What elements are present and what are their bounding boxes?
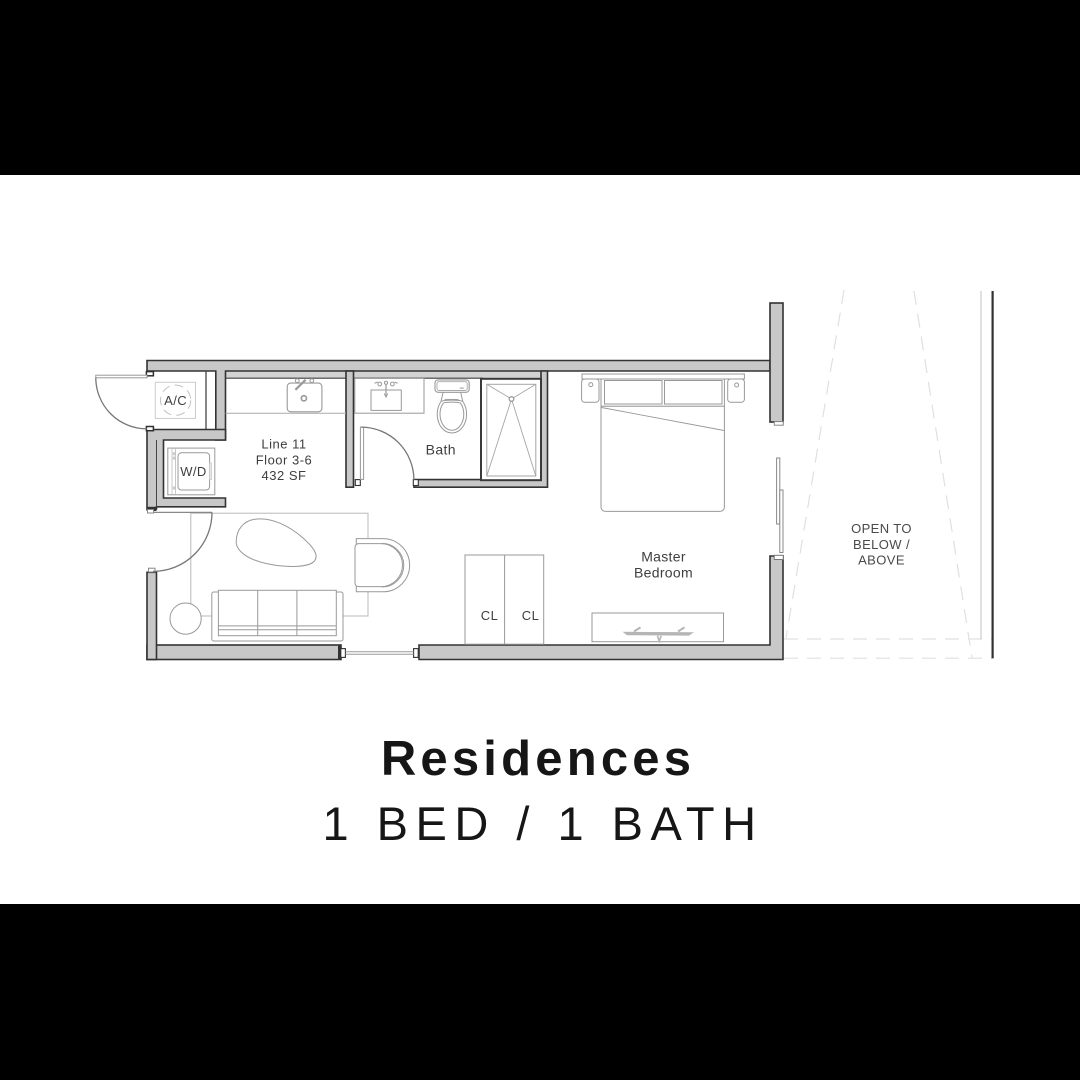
svg-text:CL: CL: [522, 608, 539, 623]
svg-text:A/C: A/C: [164, 393, 187, 408]
svg-text:Bedroom: Bedroom: [634, 565, 693, 581]
svg-text:CL: CL: [481, 608, 498, 623]
svg-text:Master: Master: [641, 549, 686, 565]
svg-text:Bath: Bath: [426, 442, 456, 458]
svg-text:OPEN TO: OPEN TO: [851, 521, 912, 536]
svg-text:BELOW /: BELOW /: [853, 537, 910, 552]
svg-text:432 SF: 432 SF: [262, 468, 307, 483]
svg-text:1 BED / 1 BATH: 1 BED / 1 BATH: [322, 797, 763, 850]
svg-text:ABOVE: ABOVE: [858, 553, 905, 568]
svg-text:W/D: W/D: [180, 464, 206, 479]
svg-text:Floor 3-6: Floor 3-6: [256, 453, 313, 468]
svg-text:Residences: Residences: [381, 732, 695, 786]
svg-text:Line 11: Line 11: [261, 437, 306, 452]
